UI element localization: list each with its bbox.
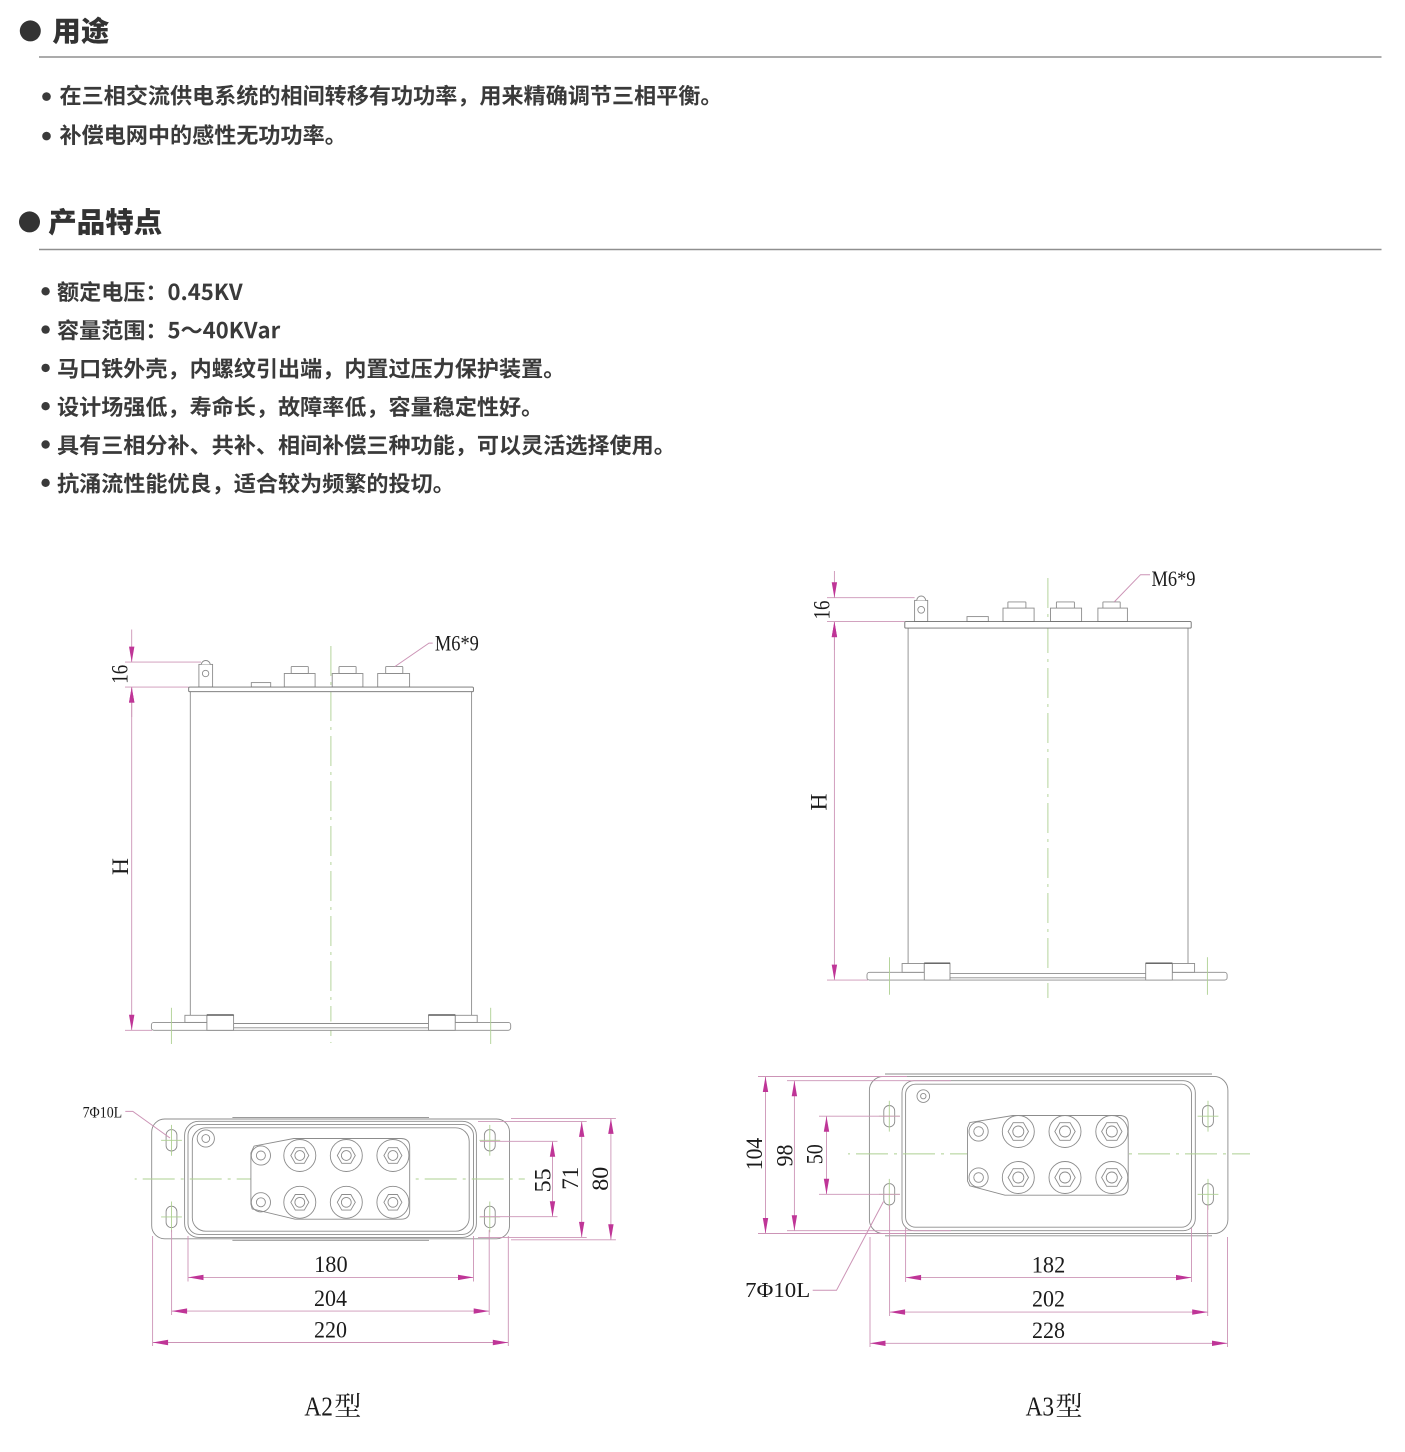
svg-text:M6*9: M6*9	[1152, 566, 1196, 591]
svg-text:220: 220	[314, 1318, 347, 1344]
svg-text:204: 204	[314, 1286, 347, 1312]
svg-text:M6*9: M6*9	[435, 631, 479, 656]
svg-text:55: 55	[530, 1168, 556, 1192]
svg-text:7Φ10L: 7Φ10L	[83, 1105, 123, 1122]
svg-text:H: H	[807, 793, 833, 810]
svg-text:16: 16	[108, 665, 134, 684]
svg-text:202: 202	[1032, 1287, 1065, 1313]
svg-text:50: 50	[803, 1144, 829, 1164]
svg-text:16: 16	[810, 600, 836, 619]
svg-text:180: 180	[314, 1252, 348, 1278]
svg-text:80: 80	[588, 1167, 614, 1191]
svg-text:104: 104	[742, 1138, 768, 1171]
svg-text:228: 228	[1032, 1318, 1065, 1344]
svg-text:7Φ10L: 7Φ10L	[745, 1278, 810, 1302]
svg-text:182: 182	[1032, 1253, 1066, 1279]
svg-text:H: H	[108, 858, 134, 875]
svg-text:98: 98	[772, 1145, 798, 1167]
svg-text:A2: A2	[304, 1391, 333, 1421]
svg-text:71: 71	[558, 1167, 584, 1190]
svg-text:A3: A3	[1026, 1391, 1055, 1421]
